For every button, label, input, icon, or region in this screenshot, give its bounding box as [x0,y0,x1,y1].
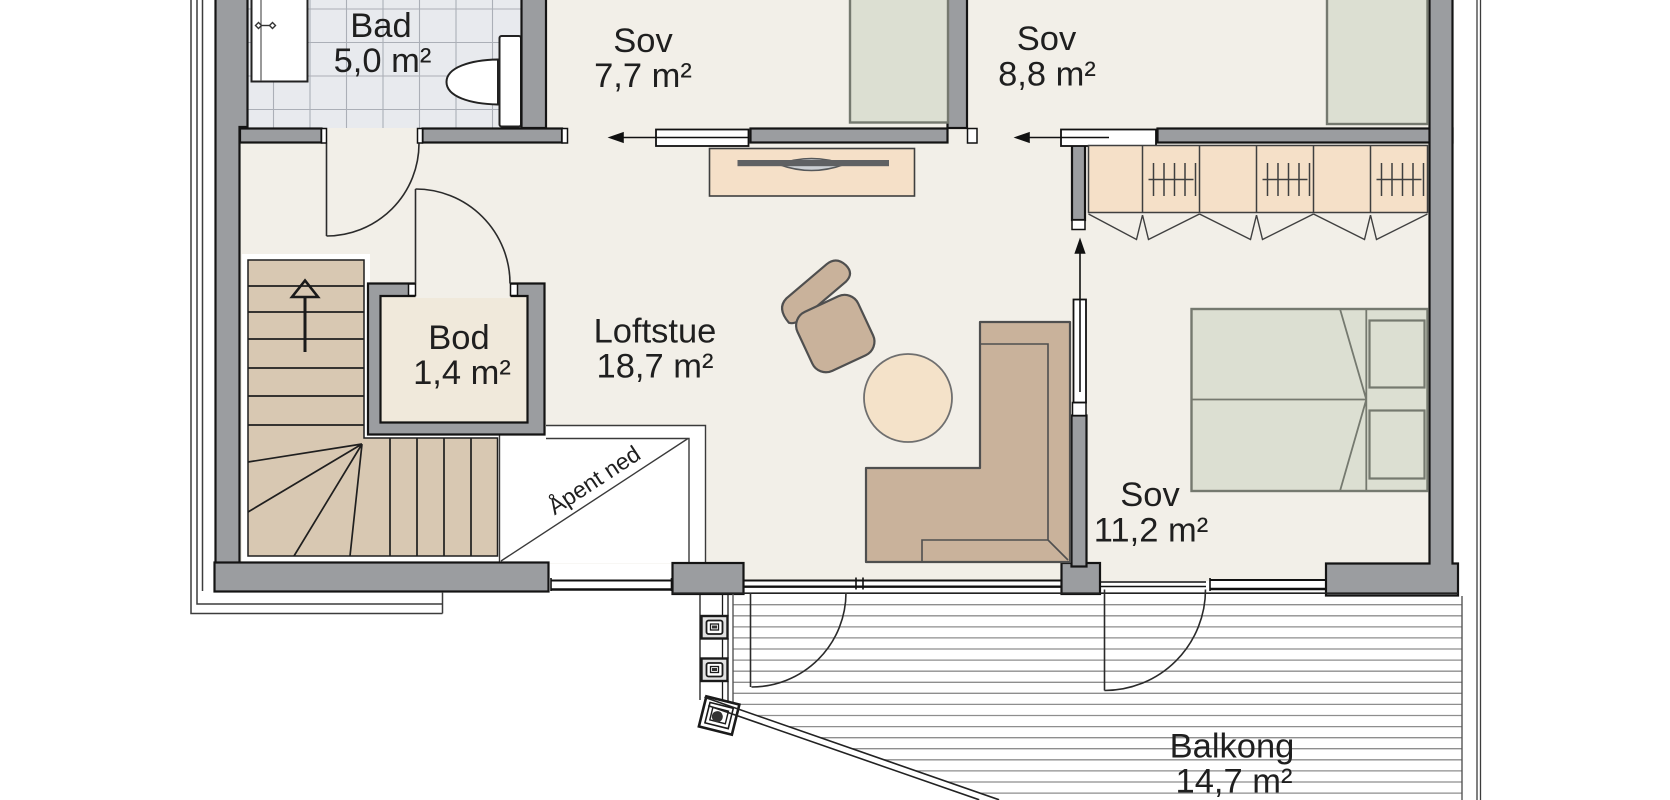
svg-text:Loftstue: Loftstue [594,313,717,351]
svg-text:Balkong: Balkong [1170,728,1295,766]
svg-text:5,0 m²: 5,0 m² [334,42,432,80]
svg-text:18,7 m²: 18,7 m² [597,348,714,386]
svg-text:7,7 m²: 7,7 m² [594,57,692,95]
svg-text:14,7 m²: 14,7 m² [1176,763,1293,800]
svg-text:Sov: Sov [613,22,673,60]
svg-text:8,8 m²: 8,8 m² [998,56,1096,94]
svg-text:Bod: Bod [428,319,489,357]
svg-text:Sov: Sov [1120,476,1180,514]
svg-text:11,2 m²: 11,2 m² [1094,512,1208,550]
svg-text:1,4 m²: 1,4 m² [413,354,511,392]
svg-text:Bad: Bad [350,7,411,45]
svg-text:Sov: Sov [1017,20,1077,58]
